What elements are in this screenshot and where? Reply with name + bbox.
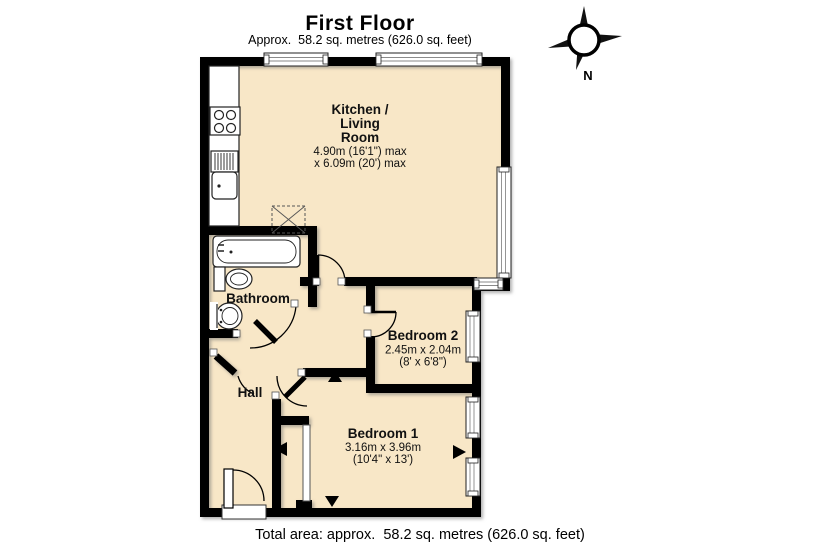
- total-area-text: Total area: approx. 58.2 sq. metres (626…: [20, 527, 820, 543]
- bedroom1-dimensions: 3.16m x 3.96m: [345, 442, 421, 454]
- kitchen-counter: [209, 66, 239, 226]
- entrance-door-leaf: [224, 469, 233, 508]
- door-jamb: [210, 349, 217, 356]
- wall-wardrobe-top: [281, 416, 309, 425]
- basin-icon: [210, 302, 242, 330]
- bathroom-label: Bathroom: [226, 291, 290, 306]
- window-bedroom1-lower: [466, 458, 480, 496]
- bedroom1-label: Bedroom 1: [348, 426, 419, 441]
- kitchen-living-label: Kitchen /: [331, 102, 388, 117]
- window-bedroom2: [466, 311, 480, 362]
- door-jamb: [291, 300, 298, 307]
- sink-icon: [212, 172, 237, 199]
- door-jamb: [298, 369, 305, 376]
- window-step: [474, 278, 503, 290]
- floor-plan: Kitchen / Living Room 4.90m (16'1") max …: [0, 0, 820, 547]
- kitchen-living-dimensions: 4.90m (16'1") max: [313, 146, 406, 158]
- door-jamb: [364, 306, 371, 313]
- wardrobe-partition: [303, 425, 310, 501]
- wall-left: [200, 57, 209, 517]
- kitchen-living-dimensions: x 6.09m (20') max: [314, 158, 406, 170]
- hall-label: Hall: [238, 385, 263, 400]
- bedroom2-dimensions: (8' x 6'8"): [399, 357, 447, 369]
- wall-bathroom-right: [308, 226, 317, 307]
- bedroom2-dimensions: 2.45m x 2.04m: [385, 345, 461, 357]
- wall-living-bottom: [344, 277, 477, 286]
- wall-bedroom2-bottom: [366, 384, 476, 393]
- compass-north-label: N: [583, 68, 592, 83]
- window-living-right: [497, 167, 511, 278]
- wall-bathroom-bottom: [200, 329, 238, 338]
- door-jamb: [272, 392, 279, 399]
- floorplan-page: First Floor Approx. 58.2 sq. metres (626…: [0, 0, 820, 547]
- drainer-icon: [211, 151, 238, 172]
- bathtub-icon: [213, 236, 300, 267]
- bedroom1-dimensions: (10'4" x 13'): [353, 454, 413, 466]
- toilet-icon: [214, 267, 252, 291]
- door-jamb: [313, 278, 320, 285]
- door-jamb: [233, 330, 240, 337]
- compass-rose-icon: N: [548, 6, 622, 83]
- kitchen-living-label: Room: [341, 130, 379, 145]
- window-bedroom1-upper: [466, 397, 480, 438]
- hob-icon: [210, 107, 240, 135]
- door-jamb: [364, 330, 371, 337]
- wall-bedroom1-left: [272, 399, 281, 511]
- kitchen-living-label: Living: [340, 116, 380, 131]
- bedroom2-label: Bedroom 2: [388, 328, 459, 343]
- window-top-1: [264, 53, 328, 66]
- wall-bathroom-top: [200, 226, 317, 235]
- door-jamb: [338, 278, 345, 285]
- window-top-2: [376, 53, 482, 66]
